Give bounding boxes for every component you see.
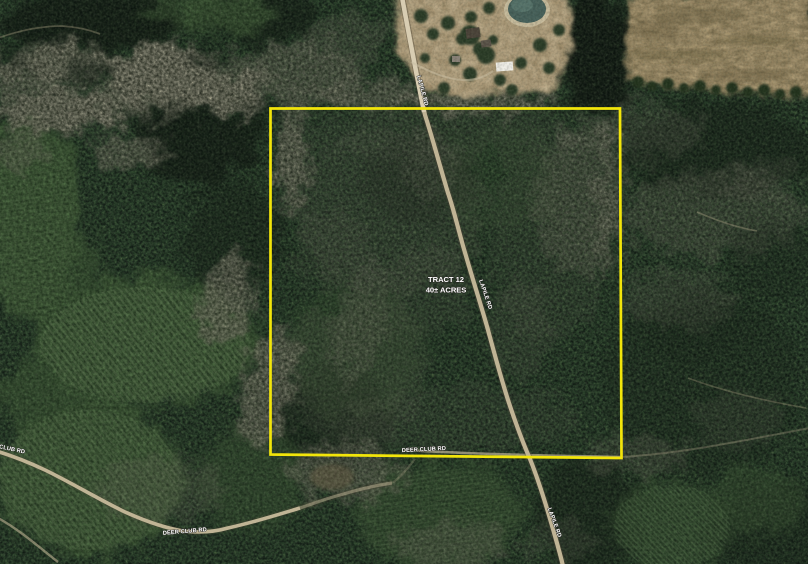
- svg-text:40± ACRES: 40± ACRES: [426, 286, 467, 295]
- svg-text:TRACT 12: TRACT 12: [428, 275, 464, 284]
